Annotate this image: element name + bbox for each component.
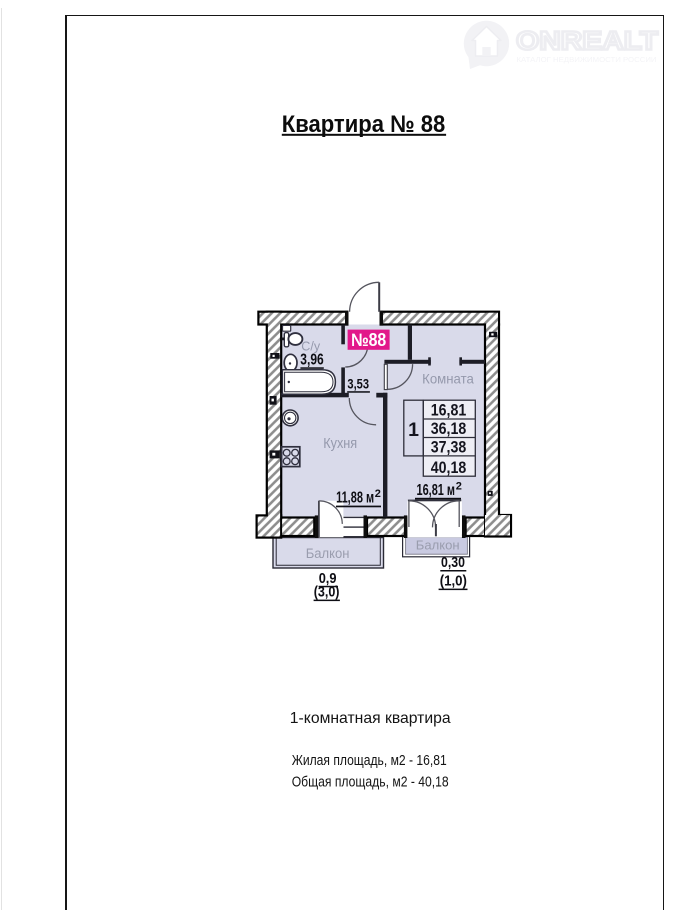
svg-text:1: 1: [408, 419, 419, 441]
svg-text:(3,0): (3,0): [314, 584, 340, 601]
svg-text:(1,0): (1,0): [440, 572, 467, 589]
svg-text:3,53: 3,53: [347, 376, 369, 392]
svg-text:Балкон: Балкон: [306, 546, 350, 561]
svg-text:2: 2: [456, 480, 462, 492]
svg-text:37,38: 37,38: [431, 438, 467, 457]
svg-text:0,30: 0,30: [441, 554, 465, 571]
svg-text:3,96: 3,96: [300, 351, 324, 368]
svg-text:Общая площадь, м2 - 40,18: Общая площадь, м2 - 40,18: [292, 774, 449, 790]
svg-text:2: 2: [375, 488, 381, 500]
svg-text:11,88 м: 11,88 м: [336, 490, 374, 507]
svg-text:Комната: Комната: [422, 371, 474, 387]
svg-text:Балкон: Балкон: [416, 538, 460, 553]
svg-text:Кухня: Кухня: [323, 435, 357, 452]
svg-text:1-комнатная квартира: 1-комнатная квартира: [290, 710, 451, 727]
svg-text:40,18: 40,18: [431, 458, 467, 477]
svg-text:16,81 м: 16,81 м: [417, 482, 456, 499]
svg-text:Жилая площадь, м2 - 16,81: Жилая площадь, м2 - 16,81: [292, 753, 447, 769]
svg-text:№88: №88: [351, 330, 386, 350]
svg-text:16,81: 16,81: [431, 401, 467, 420]
svg-text:36,18: 36,18: [431, 419, 467, 438]
